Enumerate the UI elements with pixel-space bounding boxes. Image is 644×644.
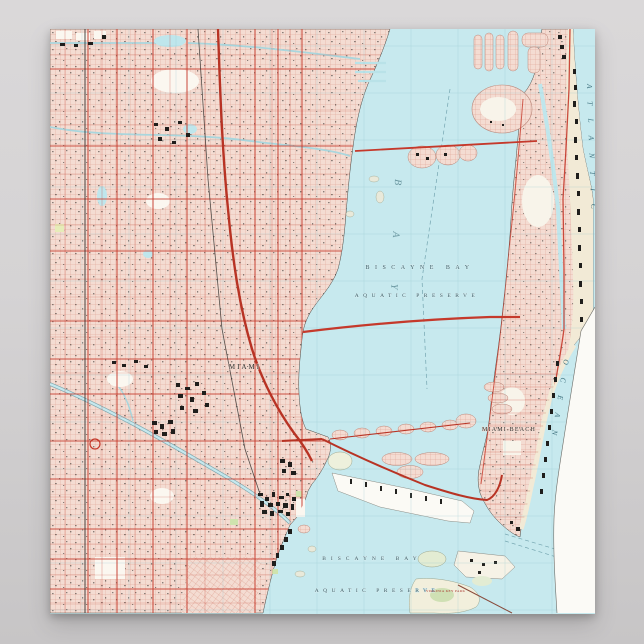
map-poster: BISCAYNE BAY AQUATIC PRESERVE BISCAYNE B… — [50, 29, 595, 614]
label-aquatic-preserve-center: AQUATIC PRESERVE — [355, 293, 480, 299]
watson-island — [328, 452, 352, 470]
stadium — [150, 488, 174, 504]
label-biscayne-bay-center: BISCAYNE BAY — [365, 265, 474, 271]
label-biscayne-bay-south: BISCAYNE BAY — [322, 556, 421, 562]
diagonal-street-district — [182, 557, 262, 613]
label-virginia-key-park: VIRGINIA KEY PARK — [426, 589, 465, 593]
scene: BISCAYNE BAY AQUATIC PRESERVE BISCAYNE B… — [0, 0, 644, 644]
spoil-island — [418, 551, 446, 567]
map-svg: BISCAYNE BAY AQUATIC PRESERVE BISCAYNE B… — [50, 29, 595, 614]
bayfront-park — [296, 499, 305, 517]
biscayne-point-fingers — [474, 31, 548, 73]
label-miami: MIAMI — [229, 363, 261, 371]
convention-center — [503, 441, 521, 455]
label-miami-beach: MIAMI BEACH — [482, 427, 536, 433]
claughton-island — [298, 525, 310, 533]
label-aquatic-preserve-south: AQUATIC PRESERVE — [315, 588, 440, 594]
golf-course-white — [522, 175, 554, 227]
